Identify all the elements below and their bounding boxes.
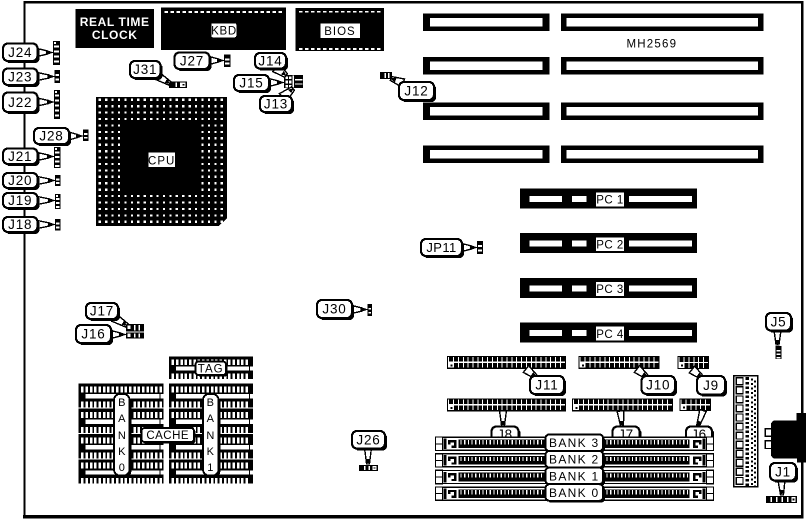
svg-text:N: N — [206, 430, 214, 442]
svg-text:PC 1: PC 1 — [596, 195, 624, 207]
svg-text:J28: J28 — [39, 129, 63, 144]
svg-text:J14: J14 — [258, 53, 282, 68]
svg-text:MH2569: MH2569 — [627, 39, 678, 51]
svg-text:J20: J20 — [8, 173, 32, 188]
svg-text:J23: J23 — [8, 69, 32, 84]
svg-text:BANK 0: BANK 0 — [549, 486, 600, 500]
svg-text:A: A — [207, 413, 215, 425]
svg-text:J17: J17 — [90, 304, 114, 319]
svg-text:J13: J13 — [264, 97, 288, 112]
svg-text:JP11: JP11 — [426, 240, 456, 255]
svg-text:J1: J1 — [775, 464, 791, 479]
svg-text:J30: J30 — [322, 302, 346, 317]
svg-text:1: 1 — [207, 462, 213, 474]
svg-text:J22: J22 — [8, 95, 32, 110]
svg-text:BANK 1: BANK 1 — [549, 469, 600, 483]
svg-text:PC 4: PC 4 — [596, 329, 624, 341]
svg-text:J18: J18 — [8, 217, 32, 232]
svg-text:TAG: TAG — [198, 363, 224, 375]
svg-text:J12: J12 — [404, 84, 428, 99]
svg-text:CPU: CPU — [148, 156, 175, 168]
svg-text:KBD: KBD — [211, 25, 237, 37]
svg-text:J5: J5 — [771, 314, 787, 329]
svg-text:B: B — [118, 397, 125, 409]
svg-text:J26: J26 — [356, 432, 380, 447]
svg-text:J16: J16 — [81, 327, 105, 342]
svg-text:J11: J11 — [535, 378, 558, 393]
svg-text:0: 0 — [119, 462, 125, 474]
svg-text:BIOS: BIOS — [324, 26, 355, 38]
svg-text:B: B — [207, 397, 214, 409]
svg-text:A: A — [118, 413, 126, 425]
svg-text:PC 2: PC 2 — [596, 239, 624, 251]
svg-text:J15: J15 — [239, 76, 263, 91]
svg-text:PC 3: PC 3 — [596, 284, 624, 296]
svg-text:N: N — [118, 430, 126, 442]
svg-text:REAL TIME: REAL TIME — [80, 15, 150, 29]
svg-text:J19: J19 — [8, 193, 32, 208]
svg-text:CACHE: CACHE — [146, 430, 189, 442]
svg-text:CLOCK: CLOCK — [92, 28, 138, 42]
svg-text:K: K — [207, 446, 215, 458]
svg-text:J31: J31 — [133, 62, 157, 77]
svg-text:J9: J9 — [703, 378, 719, 393]
svg-text:BANK 2: BANK 2 — [549, 453, 600, 467]
svg-text:K: K — [118, 446, 126, 458]
svg-text:J10: J10 — [646, 378, 670, 393]
svg-text:J24: J24 — [8, 45, 32, 60]
svg-text:J27: J27 — [180, 53, 204, 68]
svg-text:BANK 3: BANK 3 — [549, 436, 600, 450]
svg-text:J21: J21 — [8, 149, 32, 164]
